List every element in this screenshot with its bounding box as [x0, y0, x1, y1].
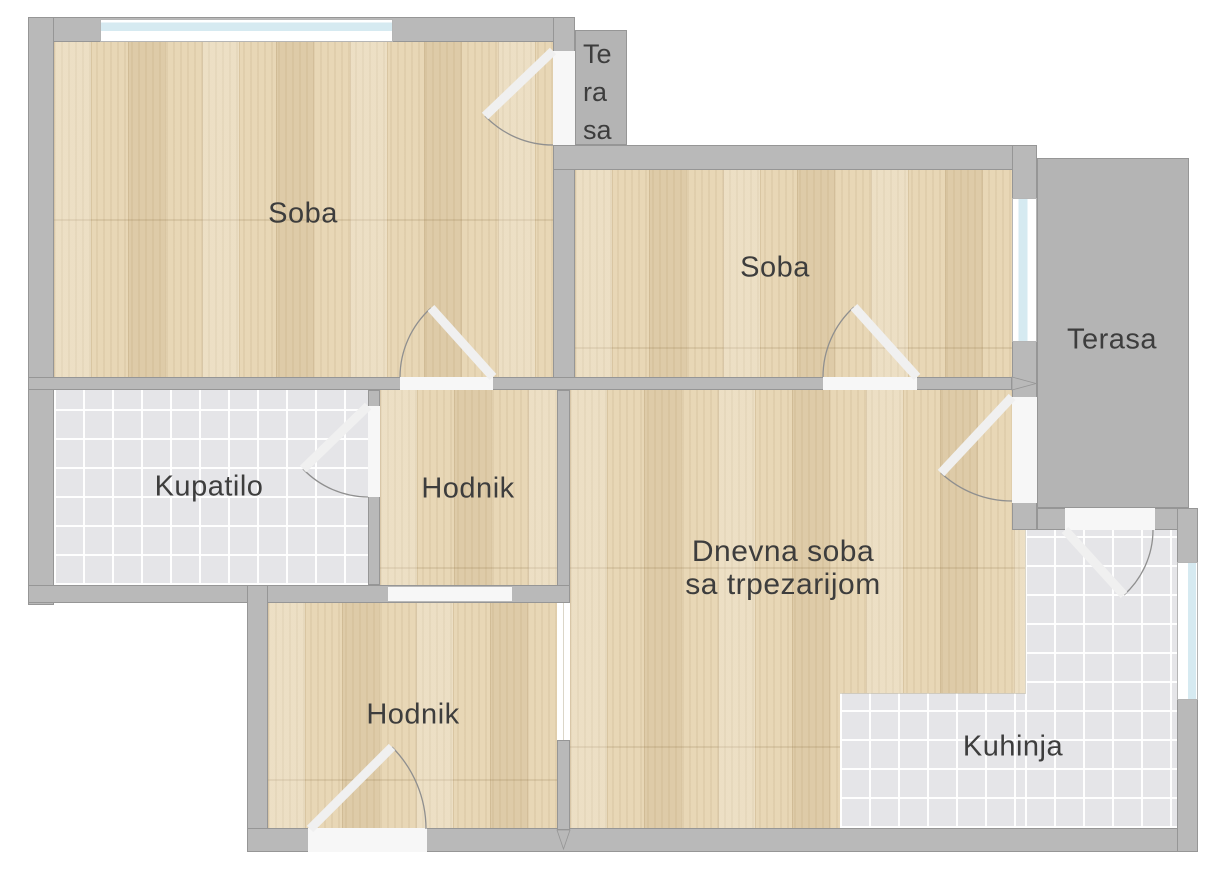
soba-left-label: Soba	[268, 198, 338, 231]
floor-plan: Soba Soba Terasa Kupatilo Hodnik Hodnik …	[0, 0, 1226, 872]
kuhinja-window	[1177, 562, 1198, 700]
dnevna-soba-label-line2: sa trpezarijom	[685, 568, 880, 601]
terasa-label: Terasa	[1067, 324, 1157, 357]
kitchen-floor-seam-horizontal	[840, 693, 1026, 694]
hodnik-dnevna-passage-seam	[563, 602, 564, 740]
dnevna-soba-label-line1: Dnevna soba	[685, 535, 880, 568]
terasa-small-label-line2: ra	[583, 73, 612, 111]
wall-top-right-wing	[553, 145, 1037, 170]
soba-left-door-opening	[400, 377, 493, 390]
terasa-small-label-line1: Te	[583, 35, 612, 73]
kupatilo-door-opening	[368, 406, 380, 497]
soba-right-label: Soba	[740, 252, 810, 285]
kuhinja-door-opening	[1065, 508, 1155, 530]
hodnik-bottom-label: Hodnik	[366, 699, 459, 732]
dnevna-soba-label: Dnevna soba sa trpezarijom	[685, 535, 880, 601]
wall-hodnik-middle-right	[557, 390, 570, 602]
wall-stub-dnevna	[557, 740, 570, 830]
wall-left	[28, 17, 54, 605]
terrace-door-opening	[553, 51, 575, 145]
kuhinja-floor-upper	[1025, 530, 1177, 828]
kupatilo-label: Kupatilo	[155, 471, 264, 504]
soba-right-door-opening	[823, 377, 917, 390]
terasa-small-label: Te ra sa	[575, 30, 612, 149]
hodnik-middle-label: Hodnik	[421, 473, 514, 506]
terasa-small-label-line3: sa	[583, 111, 612, 149]
entrance-door-opening	[308, 828, 427, 852]
hodnik-passage-opening	[388, 587, 512, 601]
soba-right-window	[1012, 198, 1037, 342]
kitchen-floor-seam-vertical	[1025, 530, 1026, 693]
wall-hodnik-bottom-left	[247, 585, 268, 852]
kuhinja-label: Kuhinja	[963, 731, 1063, 764]
balcony-door-opening	[1012, 397, 1037, 503]
soba-left-window	[100, 19, 393, 42]
